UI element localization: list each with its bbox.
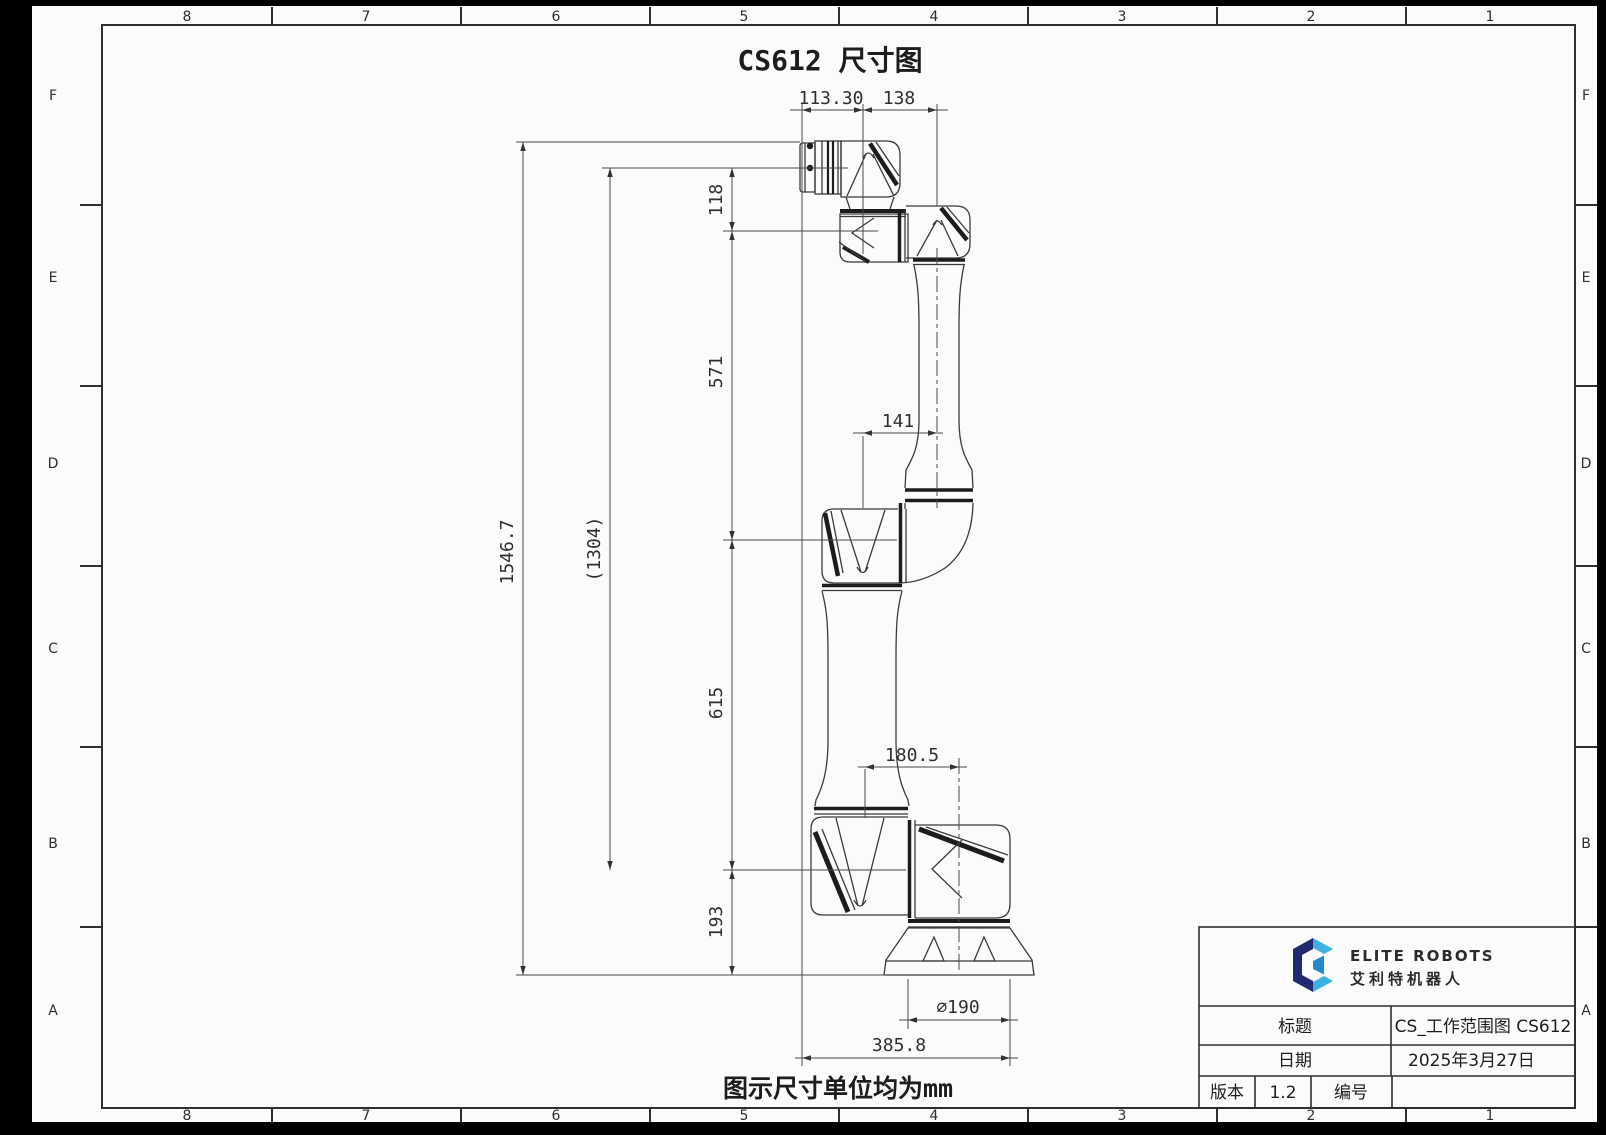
dim-upperarm-length: 615 — [706, 687, 727, 720]
zone-col-bottom: 3 — [1118, 1108, 1127, 1124]
dim-wrist-offset: 138 — [883, 88, 916, 109]
zone-row-right: D — [1581, 456, 1592, 472]
zone-row-left: F — [49, 88, 57, 104]
zone-col-bottom: 8 — [183, 1108, 192, 1124]
zone-col-bottom: 6 — [552, 1108, 561, 1124]
date-value: 2025年3月27日 — [1408, 1051, 1535, 1071]
version-label: 版本 — [1210, 1083, 1244, 1103]
zone-col-top: 8 — [183, 9, 192, 25]
drawing-sheet: 8 7 6 5 4 3 2 1 8 7 6 5 4 3 2 1 F E D C … — [0, 0, 1606, 1135]
brand-name-cn: 艾利特机器人 — [1350, 970, 1464, 988]
number-label: 编号 — [1334, 1083, 1368, 1103]
date-label: 日期 — [1278, 1051, 1312, 1071]
zone-row-right: F — [1582, 88, 1590, 104]
dim-forearm-length: 571 — [706, 356, 727, 389]
dim-shoulder-offset: 180.5 — [885, 745, 939, 766]
dim-base-height: 193 — [706, 906, 727, 939]
title-value: CS_工作范围图 CS612 — [1395, 1017, 1572, 1037]
zone-col-bottom: 5 — [740, 1108, 749, 1124]
zone-row-left: B — [48, 836, 58, 852]
dim-wrist-spacing: 118 — [706, 184, 727, 217]
dim-flange-to-shoulder: (1304) — [584, 516, 605, 581]
zone-row-right: B — [1581, 836, 1591, 852]
zone-col-top: 6 — [552, 9, 561, 25]
zone-col-bottom: 2 — [1307, 1108, 1316, 1124]
dim-flange-offset: 113.30 — [798, 88, 863, 109]
zone-row-left: A — [48, 1003, 58, 1019]
zone-col-bottom: 1 — [1486, 1108, 1495, 1124]
zone-col-top: 2 — [1307, 9, 1316, 25]
dim-overall-width: 385.8 — [872, 1035, 926, 1056]
drawing-title: CS612 尺寸图 — [737, 44, 922, 77]
zone-row-right: E — [1582, 270, 1591, 286]
zone-col-top: 7 — [362, 9, 371, 25]
zone-row-left: D — [48, 456, 59, 472]
units-note: 图示尺寸单位均为mm — [723, 1074, 953, 1103]
dim-elbow-offset: 141 — [882, 411, 915, 432]
zone-col-bottom: 7 — [362, 1108, 371, 1124]
version-value: 1.2 — [1269, 1083, 1296, 1103]
zone-col-top: 4 — [930, 9, 939, 25]
zone-col-bottom: 4 — [930, 1108, 939, 1124]
flange-bolt — [807, 143, 813, 149]
zone-col-top: 5 — [740, 9, 749, 25]
brand-name-en: ELITE ROBOTS — [1350, 947, 1495, 965]
title-label: 标题 — [1278, 1017, 1312, 1037]
zone-row-left: E — [49, 270, 58, 286]
zone-row-right: A — [1581, 1003, 1591, 1019]
zone-col-top: 3 — [1118, 9, 1127, 25]
dim-total-height: 1546.7 — [497, 519, 518, 584]
zone-row-right: C — [1581, 641, 1591, 657]
dim-base-diameter: ∅190 — [936, 997, 979, 1018]
zone-col-top: 1 — [1486, 9, 1495, 25]
zone-row-left: C — [48, 641, 58, 657]
